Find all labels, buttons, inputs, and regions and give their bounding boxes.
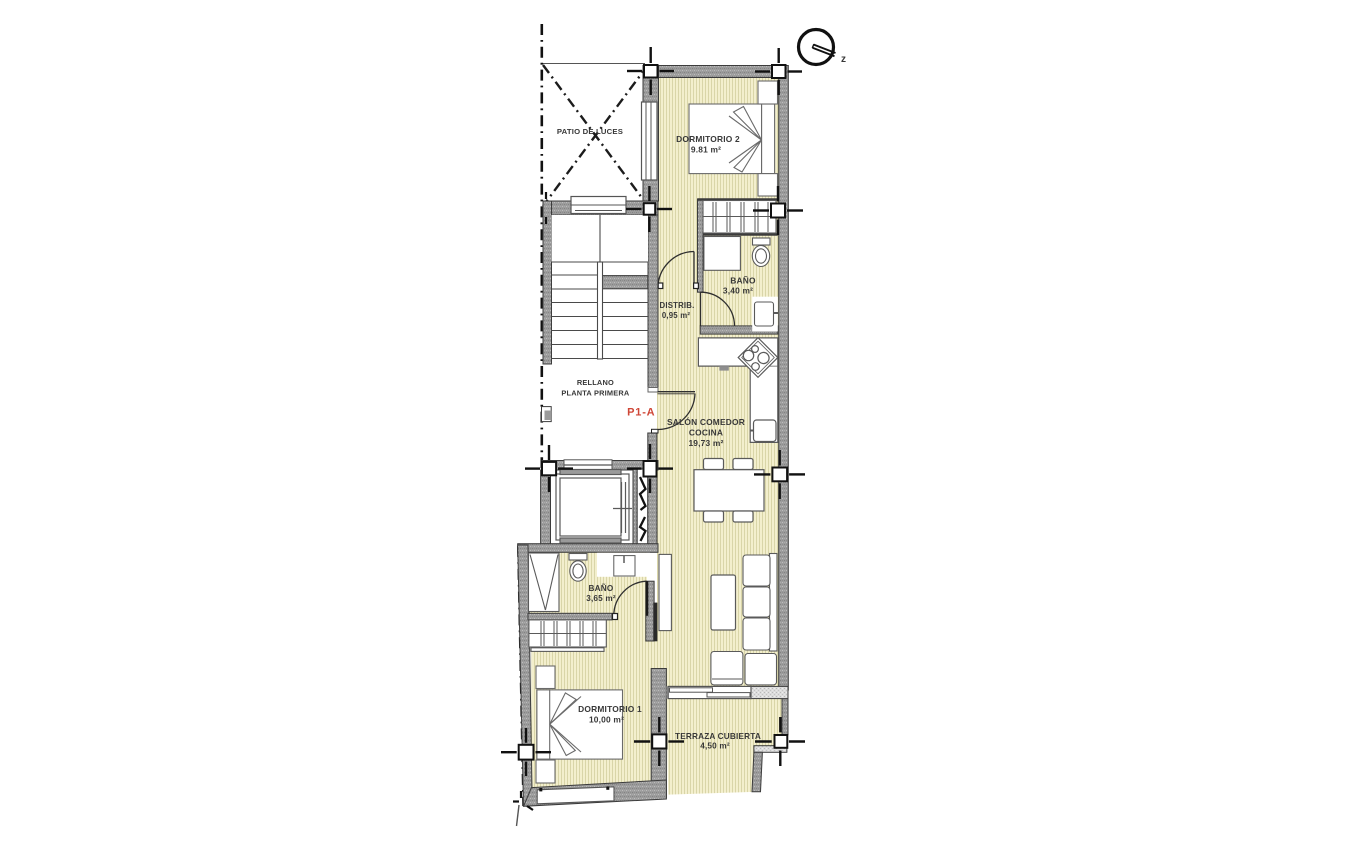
svg-text:PATIO DE LUCES: PATIO DE LUCES xyxy=(557,127,623,136)
svg-text:TERRAZA CUBIERTA: TERRAZA CUBIERTA xyxy=(675,732,761,741)
svg-text:19,73 m²: 19,73 m² xyxy=(688,438,723,448)
svg-text:DORMITORIO 2: DORMITORIO 2 xyxy=(676,134,740,144)
svg-text:PLANTA PRIMERA: PLANTA PRIMERA xyxy=(561,389,630,398)
svg-text:RELLANO: RELLANO xyxy=(577,378,614,387)
svg-text:4,50 m²: 4,50 m² xyxy=(700,742,730,751)
svg-text:10,00 m²: 10,00 m² xyxy=(589,715,624,725)
svg-text:BAÑO: BAÑO xyxy=(589,583,614,593)
svg-text:P1-A: P1-A xyxy=(627,407,655,419)
svg-text:SALÓN COMEDOR: SALÓN COMEDOR xyxy=(667,416,745,427)
svg-text:z: z xyxy=(841,54,846,65)
svg-text:DISTRIB.: DISTRIB. xyxy=(660,301,695,310)
svg-text:3,65 m²: 3,65 m² xyxy=(586,594,616,603)
svg-text:COCINA: COCINA xyxy=(689,428,723,438)
svg-text:0,95 m²: 0,95 m² xyxy=(662,311,690,320)
svg-text:DORMITORIO 1: DORMITORIO 1 xyxy=(578,704,642,714)
svg-text:3,40 m²: 3,40 m² xyxy=(723,286,753,296)
svg-text:9.81 m²: 9.81 m² xyxy=(691,145,721,155)
svg-text:BAÑO: BAÑO xyxy=(730,276,756,286)
